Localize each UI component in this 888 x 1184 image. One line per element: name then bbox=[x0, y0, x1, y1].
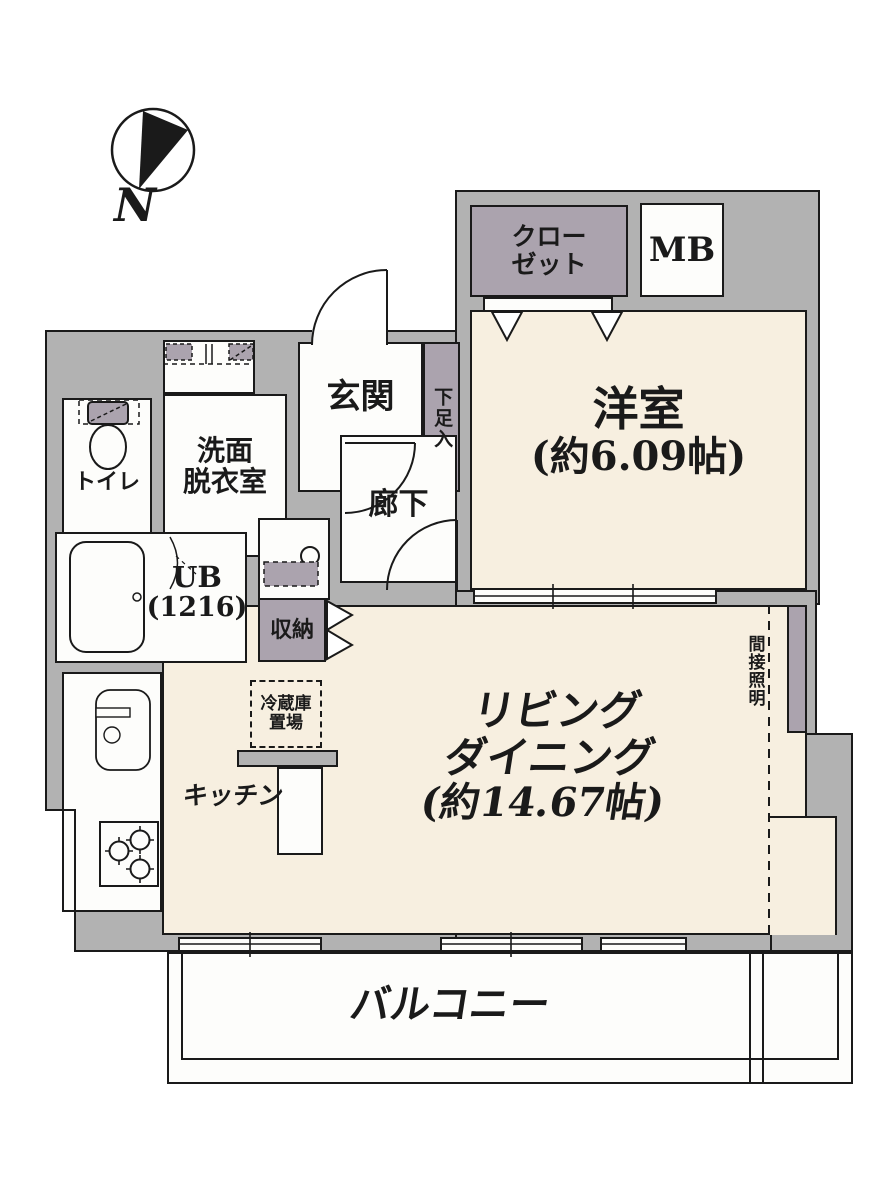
refrigerator-space-label: 冷蔵庫置場 bbox=[250, 680, 322, 748]
western-room-label: 洋室 (約6.09帖) bbox=[470, 362, 807, 502]
washbasin-nook bbox=[258, 518, 330, 600]
indirect-lighting-label: 間接照明 bbox=[740, 606, 768, 736]
living-dining-label: リビング ダイニング (約14.67帖) bbox=[284, 656, 816, 856]
toilet-label: トイレ bbox=[62, 460, 152, 504]
storage-label: 収納 bbox=[258, 598, 326, 662]
closet-opening bbox=[483, 297, 613, 312]
window-band-a bbox=[178, 937, 322, 952]
balcony-label: バルコニー bbox=[205, 975, 695, 1035]
kitchen-label: キッチン bbox=[165, 776, 301, 816]
shoe-cabinet-label: 下足入 bbox=[423, 348, 460, 488]
meter-box-label: MB bbox=[640, 203, 724, 297]
washroom-label: 洗面脱衣室 bbox=[163, 416, 287, 516]
kitchen-counter bbox=[62, 672, 162, 912]
washer-space bbox=[163, 340, 255, 394]
floor-plan: N クローゼット MB 洋室 (約6.09帖) 玄関 下足入 廊下 洗面脱衣室 … bbox=[0, 0, 888, 1184]
entrance-label: 玄関 bbox=[298, 342, 423, 452]
closet-label: クローゼット bbox=[470, 205, 628, 297]
window-band-c bbox=[600, 937, 687, 952]
unit-bath-label: UB (1216) bbox=[147, 552, 247, 632]
compass-north-label: N bbox=[100, 178, 170, 234]
corridor-label: 廊下 bbox=[340, 480, 457, 530]
sliding-door-band bbox=[473, 588, 717, 604]
window-band-b bbox=[440, 937, 583, 952]
